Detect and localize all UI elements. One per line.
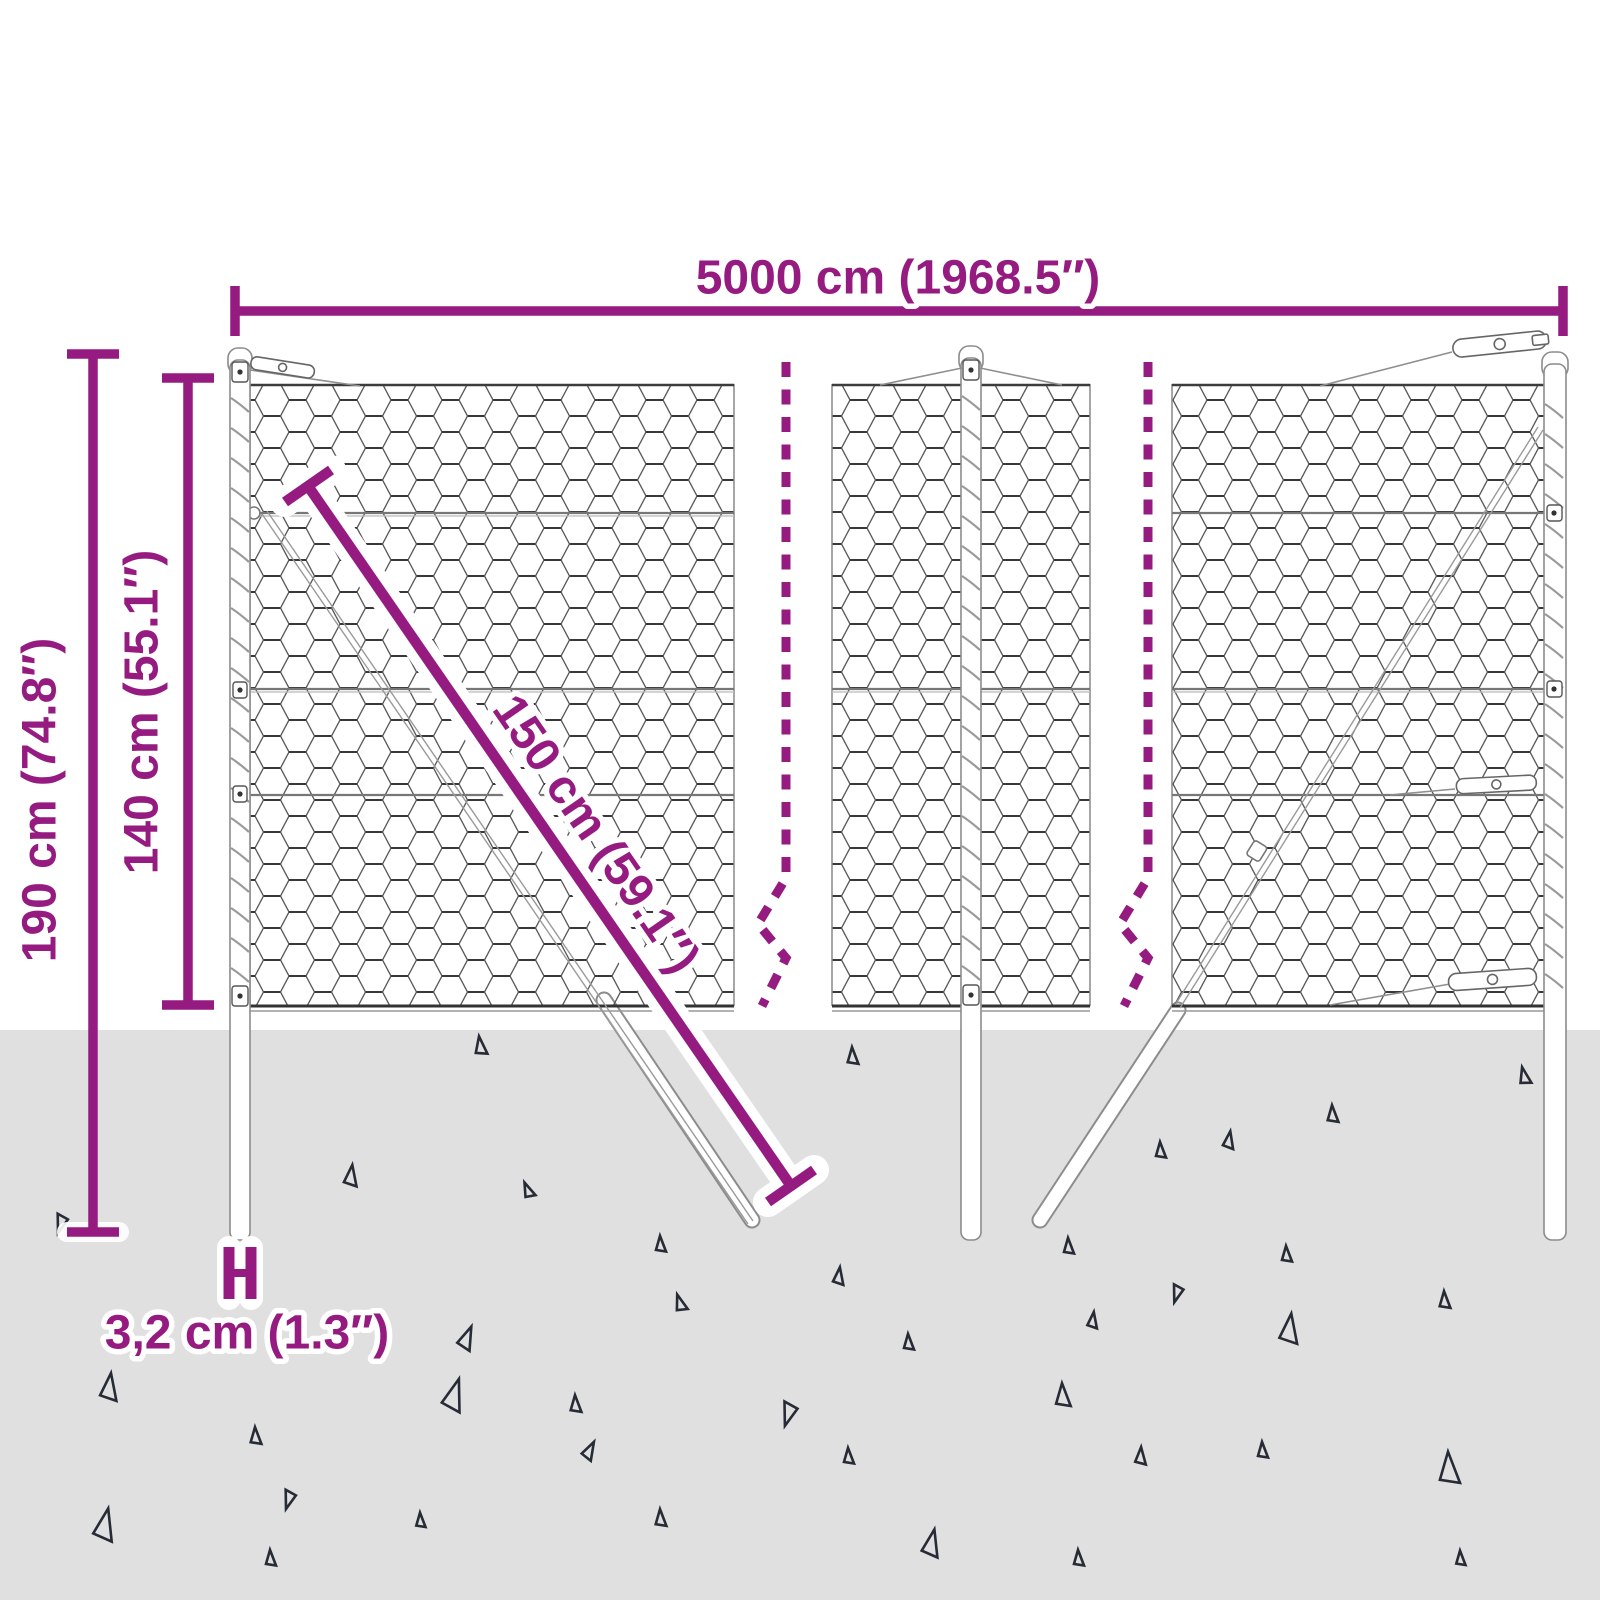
post-right xyxy=(1542,352,1568,1240)
diagram-canvas: 5000 cm (1968.5″) 190 cm (74.8″) 140 cm … xyxy=(0,0,1600,1600)
total-height-label: 190 cm (74.8″) xyxy=(14,638,67,963)
mesh-height-label: 140 cm (55.1″) xyxy=(116,550,169,875)
fence-dimension-diagram: 5000 cm (1968.5″) 190 cm (74.8″) 140 cm … xyxy=(0,0,1600,1600)
post-diameter-label: 3,2 cm (1.3″) xyxy=(105,1307,389,1360)
fence-panel-right xyxy=(1172,384,1552,1011)
dimension-post-diameter xyxy=(228,1247,252,1299)
total-width-label: 5000 cm (1968.5″) xyxy=(696,252,1101,305)
